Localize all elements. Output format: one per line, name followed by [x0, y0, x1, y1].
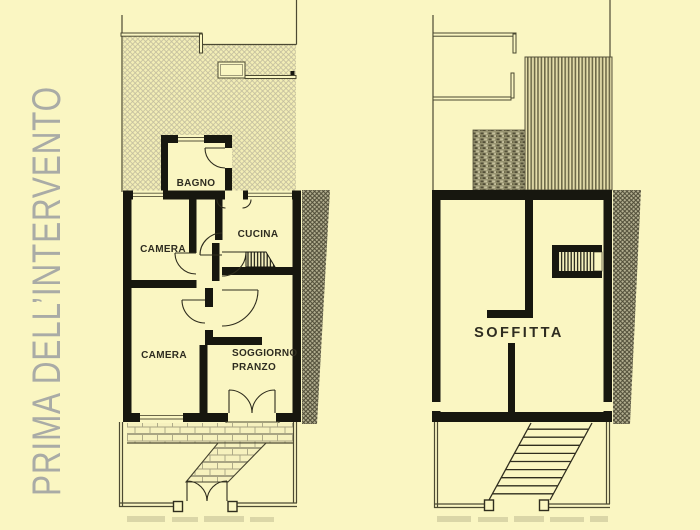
- label-camera-nord: CAMERA: [140, 244, 186, 255]
- label-soggiorno: SOGGIORNO: [232, 348, 297, 359]
- courtyard-structure: [218, 62, 245, 78]
- floor-plan-figure: PRIMA DELL’INTERVENTO: [0, 0, 700, 525]
- attic-stair: [552, 245, 602, 278]
- bagno-door-opening: [225, 148, 232, 168]
- roof-stripes-texture: [525, 57, 612, 190]
- bagno-window: [178, 135, 204, 143]
- label-cucina: CUCINA: [238, 229, 279, 240]
- figure-title-vertical: PRIMA DELL’INTERVENTO: [25, 86, 69, 496]
- label-soffitta: SOFFITTA: [474, 325, 564, 341]
- floor-plans-drawing: PRIMA DELL’INTERVENTO: [0, 0, 700, 525]
- bagno-room: [161, 135, 232, 199]
- roof-brick-texture: [473, 130, 525, 190]
- label-bagno: BAGNO: [177, 178, 216, 189]
- label-pranzo: PRANZO: [232, 362, 276, 373]
- label-camera-sud: CAMERA: [141, 350, 187, 361]
